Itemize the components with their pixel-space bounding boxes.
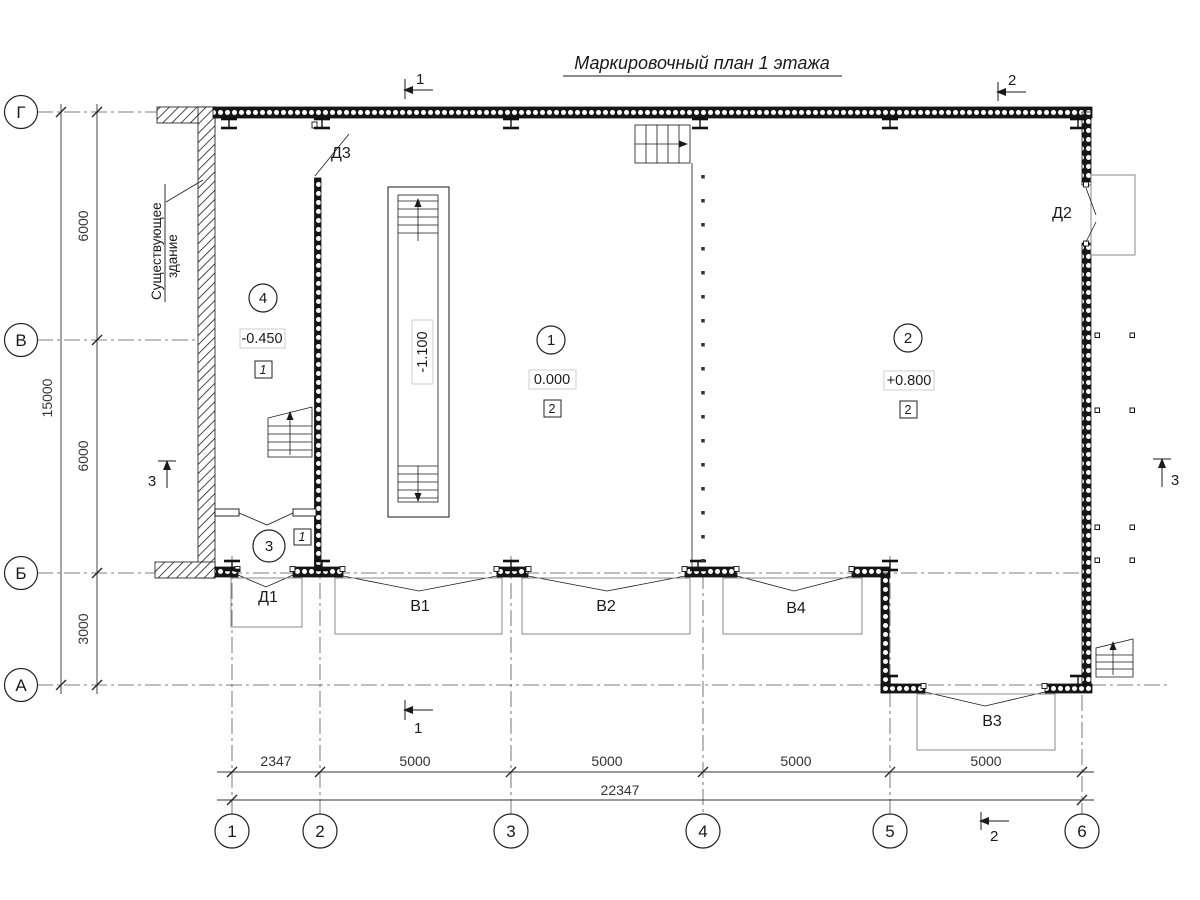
section-mark-3-left: 3 <box>148 460 176 490</box>
stairwell-central: -1.100 <box>388 187 449 517</box>
gate-v4: В4 <box>723 576 862 634</box>
gate-v3-label: В3 <box>982 713 1002 730</box>
existing-building-label: Существующее здание <box>149 184 180 302</box>
dim-left-seg-3: 3000 <box>75 613 91 644</box>
room-2-number: 2 <box>904 330 912 347</box>
dim-bottom-seg-1: 2347 <box>260 753 291 769</box>
stair-up-arrow <box>287 411 294 420</box>
axis-col-1: 1 <box>227 822 236 841</box>
gate-v3: В3 <box>917 692 1055 750</box>
room-4-mark: 4 -0.450 1 <box>240 284 285 378</box>
section-mark-2-bottom: 2 <box>979 812 1009 845</box>
axis-col-2: 2 <box>315 822 324 841</box>
dim-bottom-total: 22347 <box>601 782 640 798</box>
drawing-sheet: 15000 6000 6000 3000 2347 5000 5000 5000… <box>0 0 1200 900</box>
stair-up-arrow <box>1110 641 1117 650</box>
wall-top <box>213 107 1092 118</box>
door-room3-double <box>215 509 316 525</box>
gate-v2: В2 <box>522 576 690 634</box>
axis-row-b: Б <box>15 564 26 583</box>
wall-right-lower <box>1082 243 1091 690</box>
room-3-number: 3 <box>265 538 273 555</box>
axis-col-5: 5 <box>885 822 894 841</box>
door-d2: Д2 <box>1052 175 1135 255</box>
floor-plan-svg: 15000 6000 6000 3000 2347 5000 5000 5000… <box>0 0 1200 900</box>
room-1-mark: 1 0.000 2 <box>529 326 576 417</box>
axis-col-3: 3 <box>506 822 515 841</box>
door-d3-label: Д3 <box>331 145 351 162</box>
section-1-label: 1 <box>414 720 422 737</box>
room-1-elevation: 0.000 <box>534 372 570 388</box>
room-4-finish-mark: 1 <box>260 363 267 377</box>
dim-left-seg-2: 6000 <box>75 440 91 471</box>
gate-v4-label: В4 <box>786 600 806 617</box>
section-mark-3-right: 3 <box>1153 458 1179 489</box>
canopy-posts <box>1095 333 1135 563</box>
stair-top-axis4 <box>635 125 690 163</box>
drawing-title: Маркировочный план 1 этажа <box>563 53 842 76</box>
room-4-number: 4 <box>259 290 267 307</box>
stair-exterior-right <box>1096 639 1133 677</box>
section-mark-1-bottom: 1 <box>403 700 433 737</box>
axis-row-g: Г <box>16 103 25 122</box>
axis-col-bubbles: 1 2 3 4 5 6 <box>215 814 1099 848</box>
svg-text:здание: здание <box>165 234 180 278</box>
gate-v2-label: В2 <box>596 598 616 615</box>
axis-col-6: 6 <box>1077 822 1086 841</box>
section-2-label: 2 <box>1008 72 1016 89</box>
door-d1-label: Д1 <box>258 589 278 606</box>
svg-text:Существующее: Существующее <box>149 202 164 300</box>
dim-bottom-seg-4: 5000 <box>780 753 811 769</box>
title-text: Маркировочный план 1 этажа <box>574 53 829 73</box>
section-3-label: 3 <box>1171 472 1179 489</box>
stair-up-arrow <box>415 198 422 207</box>
stair-right-arrow <box>679 141 688 148</box>
walls <box>213 107 1092 693</box>
dim-left-seg-1: 6000 <box>75 210 91 241</box>
section-3-label: 3 <box>148 473 156 490</box>
existing-building-wall: Существующее здание <box>149 107 215 578</box>
section-mark-1-top: 1 <box>403 71 433 99</box>
room-1-number: 1 <box>547 332 555 349</box>
room-4-elevation: -0.450 <box>241 331 282 347</box>
partition-axis4 <box>692 163 703 568</box>
axis-row-v: В <box>15 331 26 350</box>
section-mark-2-top: 2 <box>996 72 1026 101</box>
stair-pit-elevation: -1.100 <box>415 331 431 372</box>
dim-bottom-seg-2: 5000 <box>399 753 430 769</box>
room-1-finish-mark: 2 <box>549 402 556 416</box>
dim-bottom-seg-3: 5000 <box>591 753 622 769</box>
door-d1: Д1 <box>231 575 302 627</box>
room-2-finish-mark: 2 <box>905 403 912 417</box>
stair-down-arrow <box>415 493 422 502</box>
gate-v1-label: В1 <box>410 598 430 615</box>
room-2-elevation: +0.800 <box>887 373 932 389</box>
room-3-mark: 3 1 <box>253 529 311 562</box>
wall-right-upper <box>1082 112 1091 185</box>
dim-bottom-seg-5: 5000 <box>970 753 1001 769</box>
room-3-finish-mark: 1 <box>299 530 306 544</box>
existing-building-leader <box>166 180 203 202</box>
section-2-label: 2 <box>990 828 998 845</box>
dim-left-total: 15000 <box>39 378 55 417</box>
columns <box>221 119 1086 685</box>
axis-row-a: А <box>15 676 27 695</box>
section-1-label: 1 <box>416 71 424 88</box>
door-d2-label: Д2 <box>1052 205 1072 222</box>
axis-col-4: 4 <box>698 822 707 841</box>
axis-row-bubbles: Г В Б А <box>5 96 38 702</box>
door-d3: Д3 <box>315 134 351 176</box>
stair-room4 <box>268 407 312 457</box>
gate-v1: В1 <box>335 576 502 634</box>
dimension-texts: 15000 6000 6000 3000 2347 5000 5000 5000… <box>39 210 1002 798</box>
room-2-mark: 2 +0.800 2 <box>884 324 934 418</box>
